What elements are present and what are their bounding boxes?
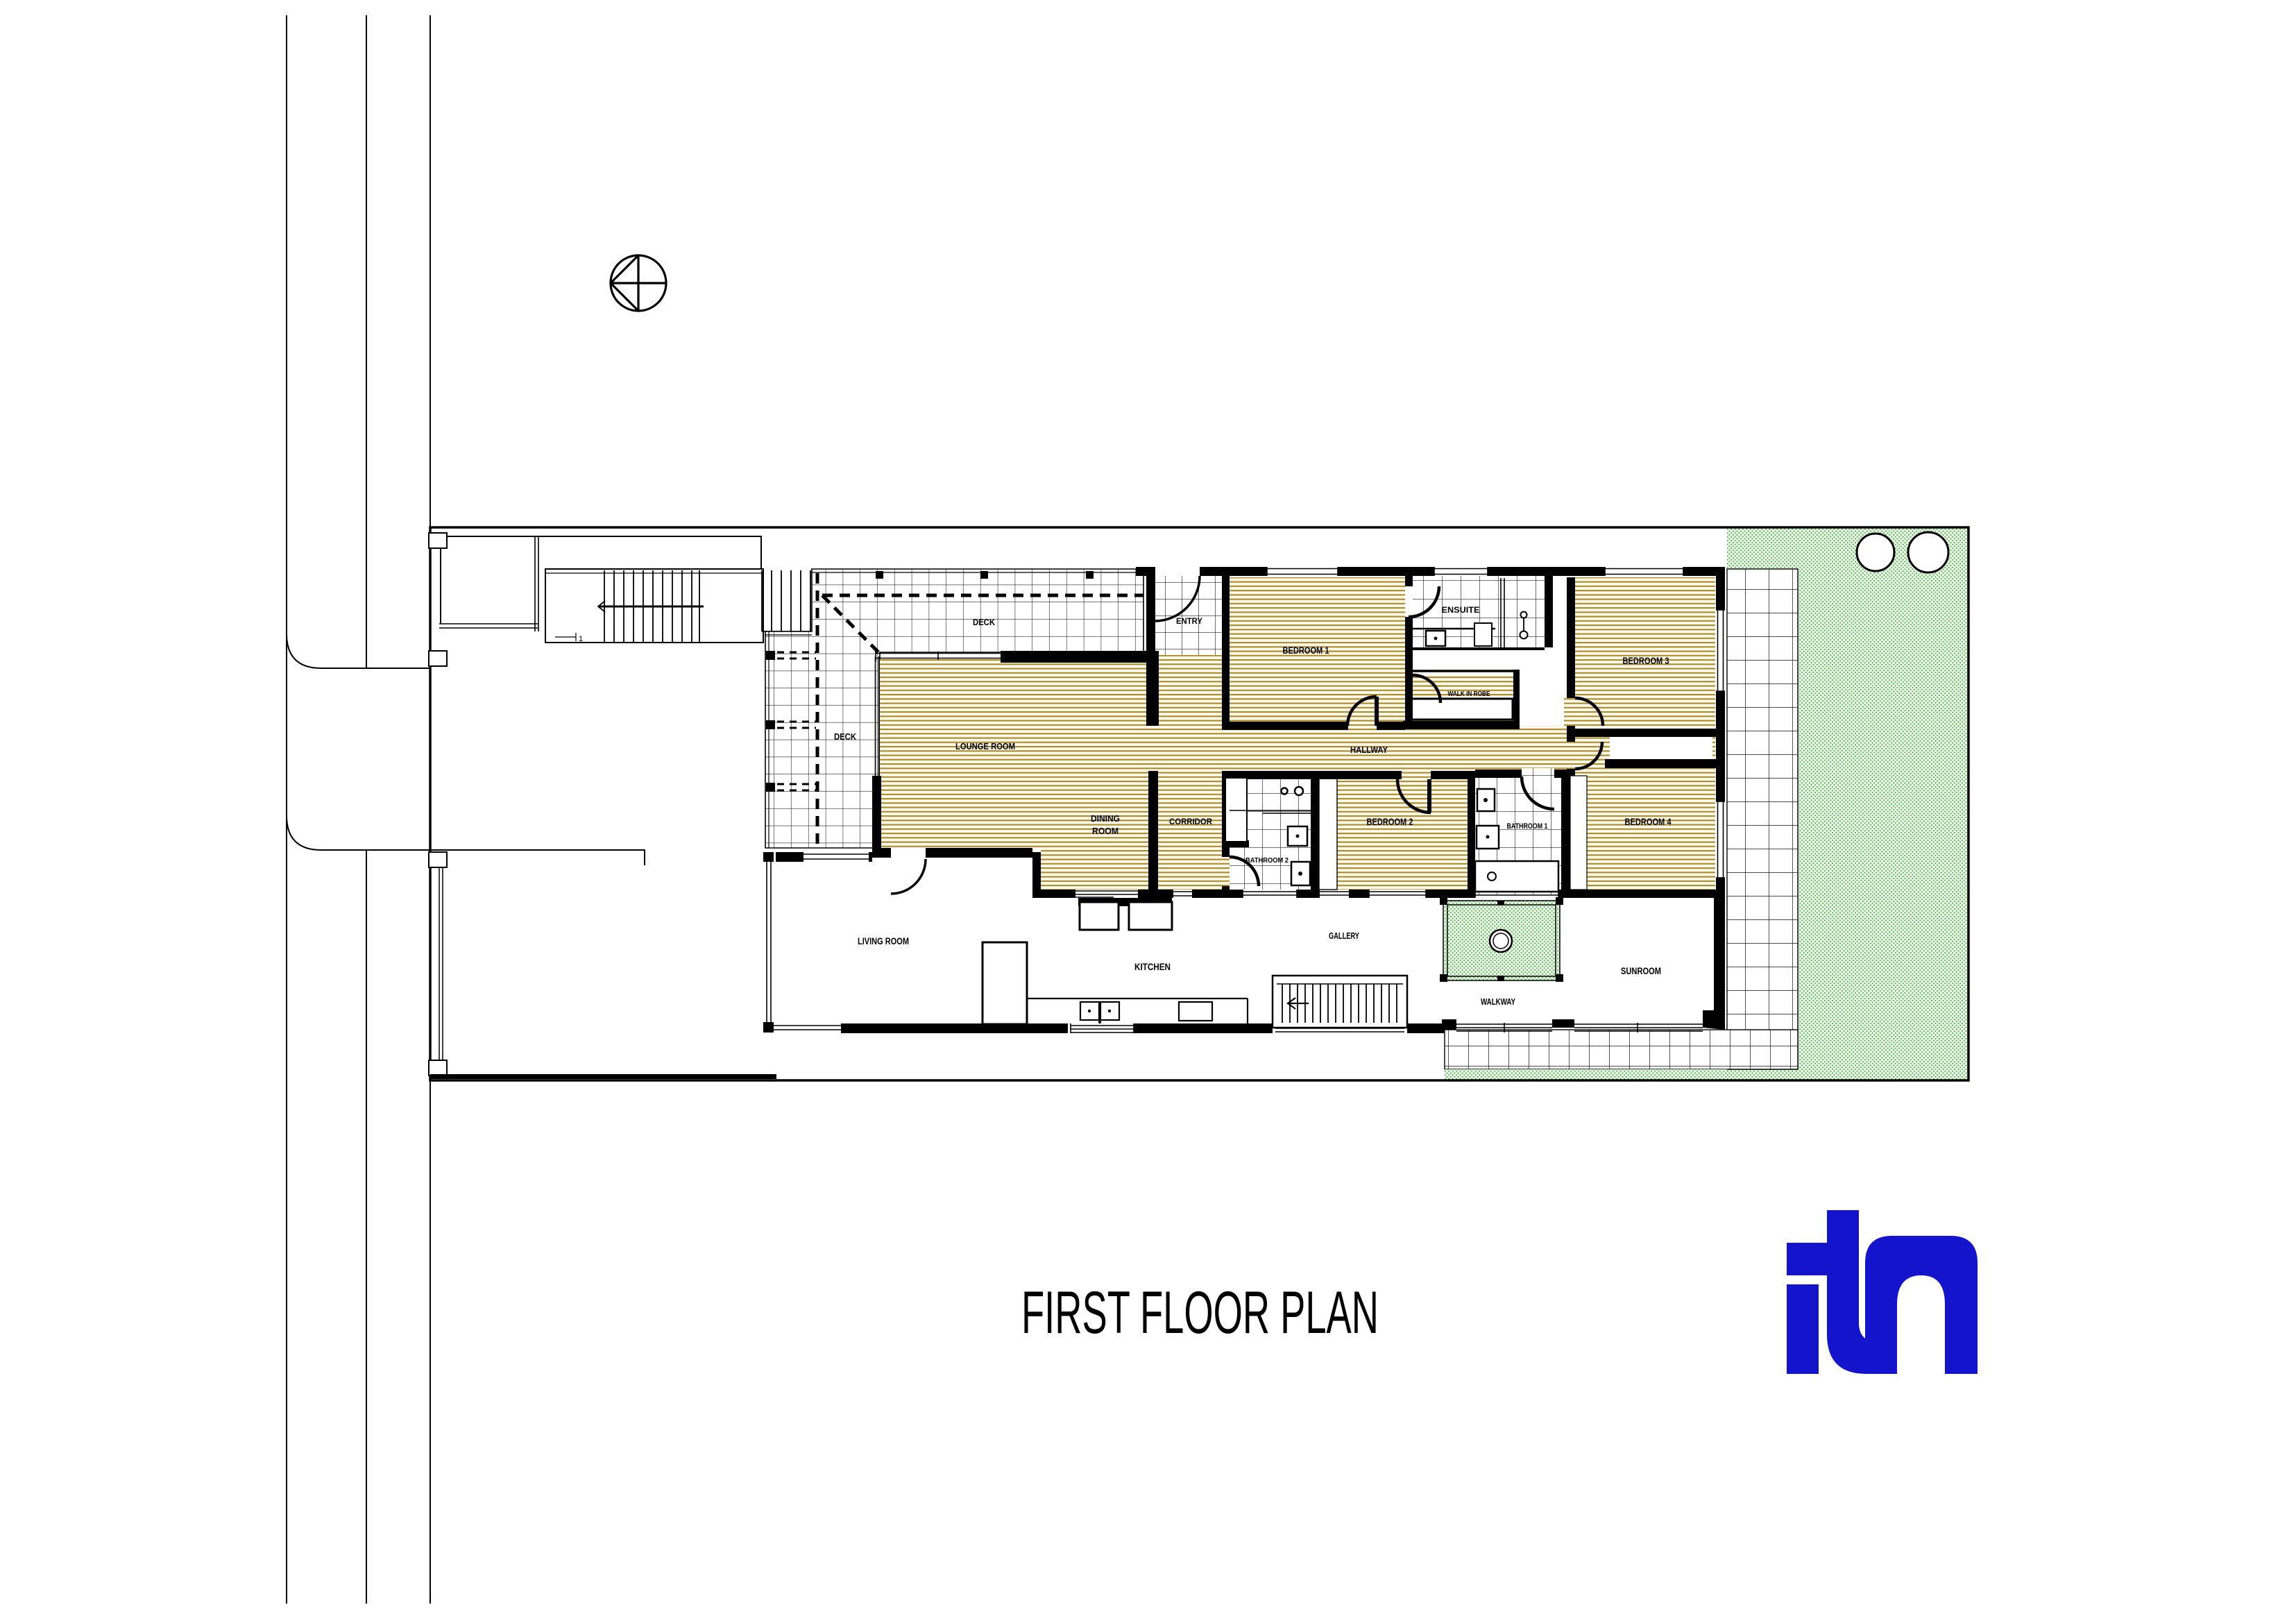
svg-text:LOUNGE ROOM: LOUNGE ROOM [955,741,1015,751]
svg-text:CORRIDOR: CORRIDOR [1169,817,1212,826]
svg-text:GALLERY: GALLERY [1329,931,1359,941]
svg-text:ROOM: ROOM [1092,826,1119,836]
svg-text:KITCHEN: KITCHEN [1134,962,1171,972]
svg-text:BATHROOM 1: BATHROOM 1 [1507,822,1548,831]
svg-text:WALKWAY: WALKWAY [1481,997,1516,1007]
svg-text:FIRST FLOOR PLAN: FIRST FLOOR PLAN [1021,1280,1379,1346]
svg-text:WALK IN ROBE: WALK IN ROBE [1448,690,1490,698]
svg-text:BATHROOM 2: BATHROOM 2 [1245,856,1289,865]
svg-text:ENSUITE: ENSUITE [1442,605,1480,615]
svg-text:ENTRY: ENTRY [1176,616,1202,626]
svg-text:DECK: DECK [973,617,996,627]
svg-text:1: 1 [579,635,583,643]
svg-text:SUNROOM: SUNROOM [1621,966,1661,976]
svg-text:DINING: DINING [1091,813,1120,824]
svg-text:BEDROOM 3: BEDROOM 3 [1623,656,1669,666]
svg-text:LIVING ROOM: LIVING ROOM [858,936,909,946]
svg-text:HALLWAY: HALLWAY [1350,745,1388,755]
svg-text:DECK: DECK [834,731,857,742]
svg-text:BEDROOM 2: BEDROOM 2 [1367,817,1413,827]
svg-text:BEDROOM 4: BEDROOM 4 [1625,817,1672,827]
svg-text:BEDROOM 1: BEDROOM 1 [1283,645,1329,656]
